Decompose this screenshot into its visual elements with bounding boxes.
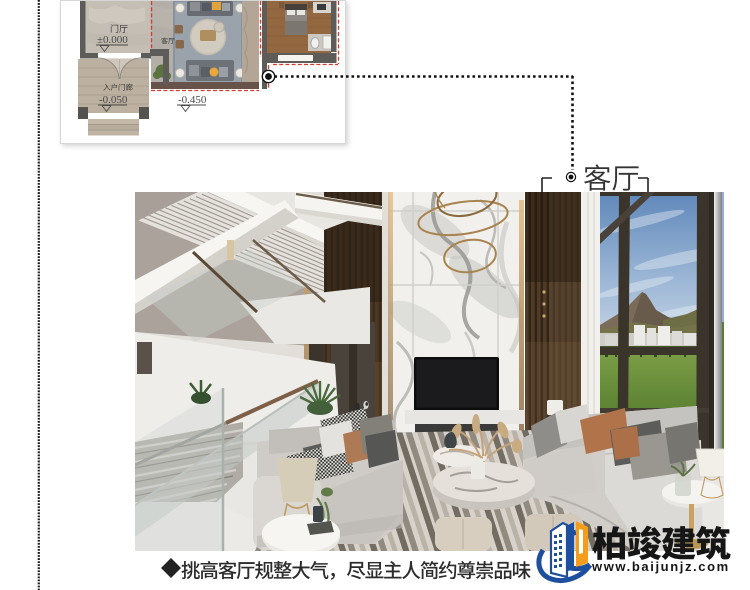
svg-text:-0.450: -0.450	[178, 94, 207, 106]
svg-text:±0.000: ±0.000	[97, 34, 128, 46]
svg-text:-0.050: -0.050	[99, 94, 128, 106]
